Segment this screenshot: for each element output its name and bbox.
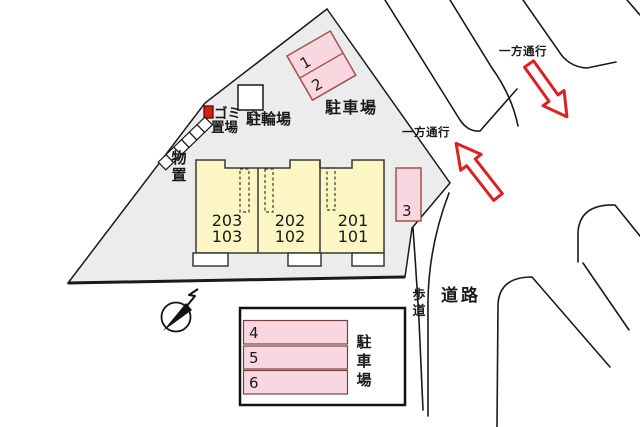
balcony-2 <box>288 253 321 266</box>
parking-south-stalls <box>244 321 348 395</box>
sidewalk-label: 歩道 <box>412 287 425 319</box>
arrow-shape <box>446 135 508 205</box>
balcony-1 <box>193 253 228 266</box>
parking-stall-5 <box>244 346 348 369</box>
road-curb-oneway <box>450 0 518 126</box>
stall-5-label: 5 <box>249 349 259 367</box>
stall-3-label: 3 <box>402 202 412 220</box>
sidewalk-left-line <box>413 228 423 410</box>
road-label: 道路 <box>441 285 481 306</box>
arrow-shape <box>518 56 577 124</box>
parking-stall-6 <box>244 371 348 395</box>
road-corner-top-right <box>627 0 640 15</box>
garbage-label-line2: 置場 <box>211 119 238 136</box>
parking-stall-4 <box>244 321 348 345</box>
north-compass-icon <box>162 289 199 332</box>
one-way-top-label: 一方通行 <box>499 44 547 58</box>
road-corner-north <box>385 0 517 131</box>
bicycle-shed-label: 駐輪場 <box>246 110 291 128</box>
unit-101-label: 101 <box>338 227 369 246</box>
balconies <box>193 253 384 266</box>
balcony-3 <box>352 253 384 266</box>
unit-labels: 203 103 202 102 201 101 <box>212 211 369 246</box>
site-plan-canvas: 203 103 202 102 201 101 1 2 3 4 5 6 <box>0 0 640 427</box>
one-way-arrow-down-icon <box>518 56 577 124</box>
stall-4-label: 4 <box>249 324 259 342</box>
parking-south-numbers: 4 5 6 <box>249 324 259 392</box>
road-corner-southeast-left <box>497 277 610 427</box>
one-way-left-label: 一方通行 <box>402 125 450 139</box>
storage-label: 物置 <box>171 149 186 184</box>
unit-102-label: 102 <box>275 227 306 246</box>
parking-bottom-label: 駐車場 <box>356 333 371 389</box>
bicycle-shed <box>238 85 263 110</box>
parking-top-label: 駐車場 <box>325 98 378 117</box>
unit-103-label: 103 <box>212 227 243 246</box>
stall-6-label: 6 <box>249 374 259 392</box>
road-edge-diagonal <box>583 263 629 330</box>
garbage-box <box>204 106 213 118</box>
compass-north-glyph <box>186 289 198 307</box>
road-corner-east <box>578 205 640 262</box>
site-plan: 203 103 202 102 201 101 1 2 3 4 5 6 <box>0 0 640 427</box>
one-way-arrow-up-icon <box>446 135 508 205</box>
